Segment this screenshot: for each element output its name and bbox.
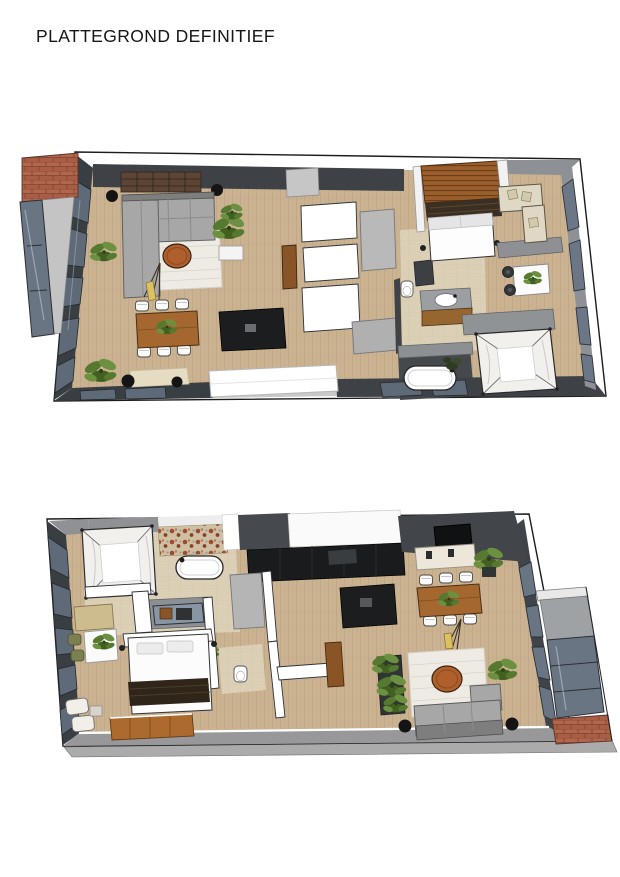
coffee-table: [163, 244, 191, 268]
speaker: [399, 720, 412, 733]
planter-box: [219, 246, 243, 260]
balcony-glazing: [547, 636, 604, 718]
brick-wall: [552, 715, 612, 744]
floorplan-canvas: [0, 0, 620, 877]
plan2-toilet: [234, 666, 247, 682]
document-page: PLATTEGROND DEFINITIEF: [0, 0, 620, 877]
mirror-panel: [414, 260, 434, 286]
wood-slat-canopy: [421, 161, 501, 203]
plan2-dining-set: [417, 572, 482, 626]
plan2-bed: [119, 634, 217, 714]
cooktop: [328, 549, 357, 565]
coffee-table: [432, 666, 462, 692]
bathtub: [176, 556, 223, 579]
floor-plan-1: [20, 152, 606, 401]
floor-plan-2: [47, 510, 617, 757]
sideboard: [325, 642, 344, 687]
dark-blanket: [128, 678, 210, 706]
partition-screen: [176, 608, 192, 620]
balcony-floor: [540, 596, 594, 640]
roof-garden-strip: [158, 524, 228, 556]
plant-pot: [482, 567, 496, 577]
tv: [434, 524, 472, 547]
tv-wall-unit: [121, 172, 201, 192]
bed: [420, 213, 500, 261]
speaker: [106, 190, 118, 202]
tv-console: [415, 544, 476, 570]
bathtub: [404, 366, 456, 390]
stool: [122, 375, 135, 388]
toilet: [401, 281, 413, 297]
stool: [172, 377, 183, 388]
tall-cabinet: [282, 245, 297, 289]
plan2-dresser: [110, 714, 194, 740]
speaker: [506, 718, 519, 731]
brick-wall: [22, 153, 78, 202]
